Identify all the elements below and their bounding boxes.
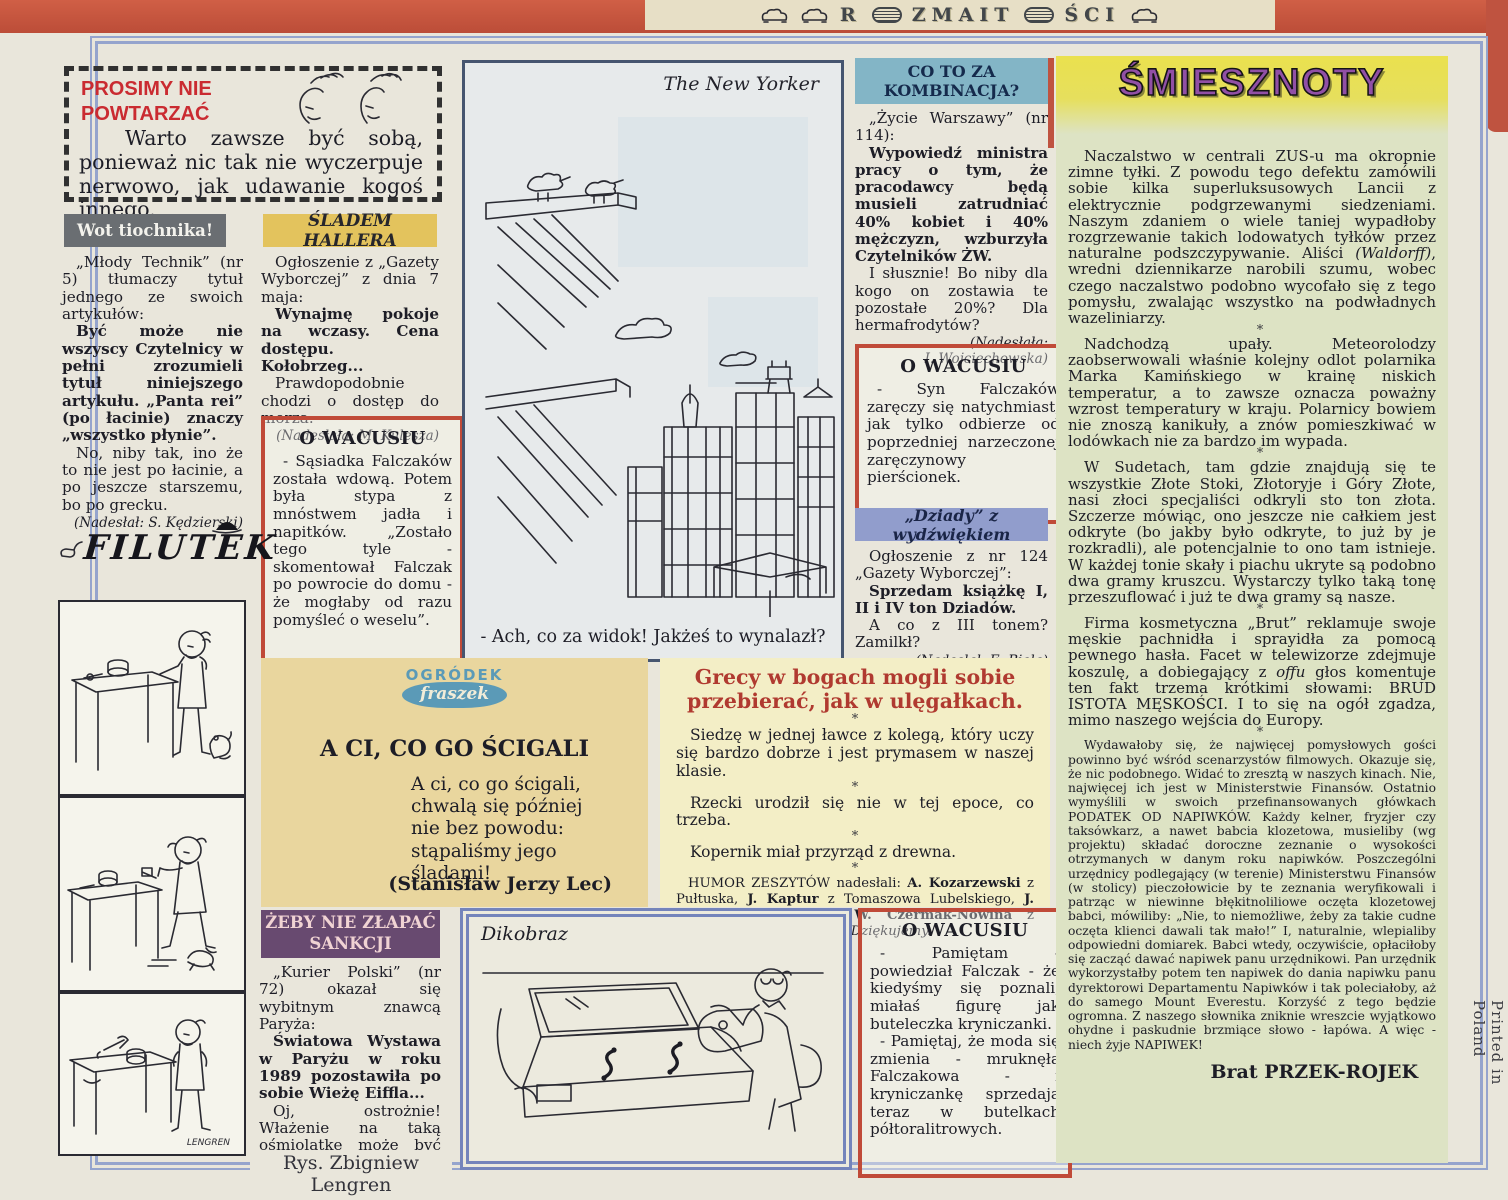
newspaper-page: R ZMAIT ŚCI Printed in Poland PROSIMY NI…	[0, 0, 1508, 1200]
cartoon-source: The New Yorker	[663, 73, 819, 95]
box-header: O WACUSIU	[870, 920, 1060, 941]
box-header: O WACUSIU	[867, 356, 1060, 377]
box-header: O WACUSIU	[273, 428, 452, 449]
paragraph: „Kurier Polski” (nr 72) okazał się wybit…	[259, 964, 441, 1033]
masthead-letters-sci: ŚCI	[1064, 4, 1120, 26]
asterisk-separator: *	[660, 832, 1050, 842]
section-header-kombinacja: CO TO ZA KOMBINACJA?	[855, 58, 1048, 104]
kombinacja-text: „Życie Warszawy” (nr 114): Wypowiedź min…	[855, 110, 1048, 367]
ogrodek-fraszek-logo: OGRÓDEK fraszek	[261, 666, 648, 708]
filutek-wordmark: FILUTEK	[82, 528, 279, 568]
pipe-doodle-icon	[58, 538, 84, 564]
header-line: CO TO ZA	[908, 62, 996, 81]
printed-in-poland: Printed in Poland	[1486, 1000, 1506, 1140]
motto-text: Warto zawsze być sobą, ponieważ nic tak …	[79, 127, 423, 222]
masthead-o-pill	[872, 7, 902, 23]
wot-tiochnika-text: „Młody Technik” (nr 5) tłumaczy tytuł je…	[62, 254, 243, 531]
cartoon-source: Dikobraz	[481, 923, 568, 945]
paragraph: - Pamiętam - powiedział Falczak - że kie…	[870, 945, 1060, 1033]
paragraph: W Sudetach, tam gdzie znajdują się te ws…	[1068, 459, 1436, 605]
humor-zeszytow-box: Grecy w bogach mogli sobie przebierać, j…	[660, 658, 1050, 907]
paragraph: Wynajmę pokoje na wczasy. Cena dostępu. …	[261, 306, 439, 375]
dikobraz-cartoon-box: Dikobraz	[460, 908, 852, 1170]
city-view-cartoon	[468, 97, 838, 617]
smiesznoty-title: ŚMIESZNOTY	[1056, 62, 1448, 105]
asterisk-separator: *	[660, 783, 1050, 793]
smiesznoty-text: Naczalstwo w centrali ZUS-u ma okropnie …	[1068, 148, 1436, 1156]
poem-line: nie bez powodu:	[411, 818, 582, 840]
red-accent-strip	[1048, 58, 1054, 148]
asterisk-separator: *	[660, 864, 1050, 874]
paragraph: Światowa Wystawa w Paryżu w roku 1989 po…	[259, 1033, 441, 1102]
motto-box: PROSIMY NIE POWTARZAĆ Warto zawsze być s…	[64, 66, 442, 202]
cartoon-caption: - Ach, co za widok! Jakżeś to wynalazł?	[465, 627, 841, 647]
section-header-dziady: „Dziady” z wydźwiękiem	[855, 508, 1048, 541]
header-line: ŻEBY NIE ZŁAPAĆ	[265, 913, 436, 934]
paragraph: „Młody Technik” (nr 5) tłumaczy tytuł je…	[62, 254, 243, 323]
section-header-sladem-hallera: ŚLADEM HALLERA	[263, 214, 437, 247]
filutek-panel-1	[58, 600, 246, 796]
dziady-text: Ogłoszenie z nr 124 „Gazety Wyborczej”: …	[855, 548, 1048, 669]
hat-doodle-icon	[212, 516, 242, 534]
filutek-panel-3: LENGREN	[58, 992, 246, 1156]
o-wacusiu-box-1: O WACUSIU - Sąsiadka Falczaków została w…	[261, 416, 464, 672]
two-faces-doodle	[271, 65, 431, 127]
paragraph: - Syn Falczaków zaręczy się natychmiast,…	[867, 381, 1060, 487]
asterisk-separator: *	[660, 715, 1050, 725]
o-wacusiu-box-3: O WACUSIU - Pamiętam - powiedział Falcza…	[858, 908, 1072, 1178]
filutek-logo: FILUTEK	[58, 516, 248, 580]
fraszka-title: A CI, CO GO ŚCIGALI	[261, 736, 648, 762]
humor-item: Rzecki urodził się nie w tej epoce, co t…	[676, 795, 1034, 831]
paragraph: Sprzedam książkę I, II i IV ton Dziadów.	[855, 583, 1048, 618]
paragraph: Wydawałoby się, że najwięcej pomysłowych…	[1068, 738, 1436, 1052]
header-line: SANKCJI	[309, 934, 391, 955]
masthead-o-pill	[1024, 7, 1054, 23]
sofa-icon	[1130, 6, 1160, 24]
masthead-letters-zmait: ZMAIT	[912, 4, 1015, 26]
fraszki-box: OGRÓDEK fraszek A CI, CO GO ŚCIGALI A ci…	[261, 658, 648, 907]
asterisk-separator: *	[1068, 728, 1436, 738]
sofa-icon	[760, 6, 790, 24]
paragraph: Nadchodzą upały. Meteorolodzy zaobserwow…	[1068, 336, 1436, 449]
logo-blob: fraszek	[402, 682, 507, 708]
column-signature: Brat PRZEK-ROJEK	[1068, 1062, 1436, 1083]
paragraph: A co z III tonem? Zamilkł?	[855, 617, 1048, 652]
new-yorker-cartoon-box: The New Yorker	[462, 60, 844, 662]
header-line: KOMBINACJA?	[884, 81, 1019, 100]
paragraph: Firma kosmetyczna „Brut” reklamuje swoje…	[1068, 615, 1436, 728]
poem-line: A ci, co go ścigali,	[411, 774, 582, 796]
masthead-letter-r: R	[840, 4, 862, 26]
humor-item: Kopernik miał przyrząd z drewna.	[676, 844, 1034, 862]
paragraph: - Pamiętaj, że moda się zmienia - mruknę…	[870, 1033, 1060, 1139]
paragraph: „Życie Warszawy” (nr 114):	[855, 110, 1048, 145]
artist-credit: Rys. Zbigniew Lengren	[250, 1150, 452, 1198]
paragraph: - Sąsiadka Falczaków została wdową. Pote…	[273, 453, 452, 629]
poem-author: (Stanisław Jerzy Lec)	[388, 873, 612, 895]
paragraph: Być może nie wszyscy Czytelnicy w pełni …	[62, 323, 243, 444]
filutek-panel-2	[58, 796, 246, 992]
cartoonist-signature: LENGREN	[187, 1138, 230, 1148]
violin-car-cartoon	[471, 949, 835, 1149]
poem-line: chwalą się później	[411, 796, 582, 818]
right-red-corner	[1486, 0, 1508, 132]
motto-title: PROSIMY NIE POWTARZAĆ	[81, 77, 212, 127]
masthead-banner: R ZMAIT ŚCI	[645, 0, 1275, 30]
paragraph: Ogłoszenie z „Gazety Wyborczej” z dnia 7…	[261, 254, 439, 306]
smiesznoty-column: Naczalstwo w centrali ZUS-u ma okropnie …	[1056, 100, 1448, 1163]
dikobraz-inner-frame: Dikobraz	[466, 914, 846, 1164]
smiesznoty-title-band: ŚMIESZNOTY	[1056, 56, 1448, 134]
paragraph: No, niby tak, ino że to nie jest po łaci…	[62, 445, 243, 514]
paragraph: Ogłoszenie z nr 124 „Gazety Wyborczej”:	[855, 548, 1048, 583]
section-header-sankcje: ŻEBY NIE ZŁAPAĆ SANKCJI	[261, 910, 440, 958]
paragraph: Naczalstwo w centrali ZUS-u ma okropnie …	[1068, 148, 1436, 326]
humor-item: Siedzę w jednej ławce z kolegą, który uc…	[676, 727, 1034, 780]
fraszka-poem: A ci, co go ścigali, chwalą się później …	[411, 774, 582, 885]
poem-line: stąpaliśmy jego	[411, 841, 582, 863]
section-header-wot-tiochnika: Wot tiochnika!	[64, 214, 226, 247]
sofa-icon	[800, 6, 830, 24]
paragraph: Wypowiedź ministra pracy o tym, że praco…	[855, 145, 1048, 266]
o-wacusiu-box-2: O WACUSIU - Syn Falczaków zaręczy się na…	[855, 344, 1072, 524]
humor-headline: Grecy w bogach mogli sobie przebierać, j…	[674, 666, 1036, 713]
paragraph: I słusznie! Bo niby dla kogo on zostawia…	[855, 265, 1048, 334]
